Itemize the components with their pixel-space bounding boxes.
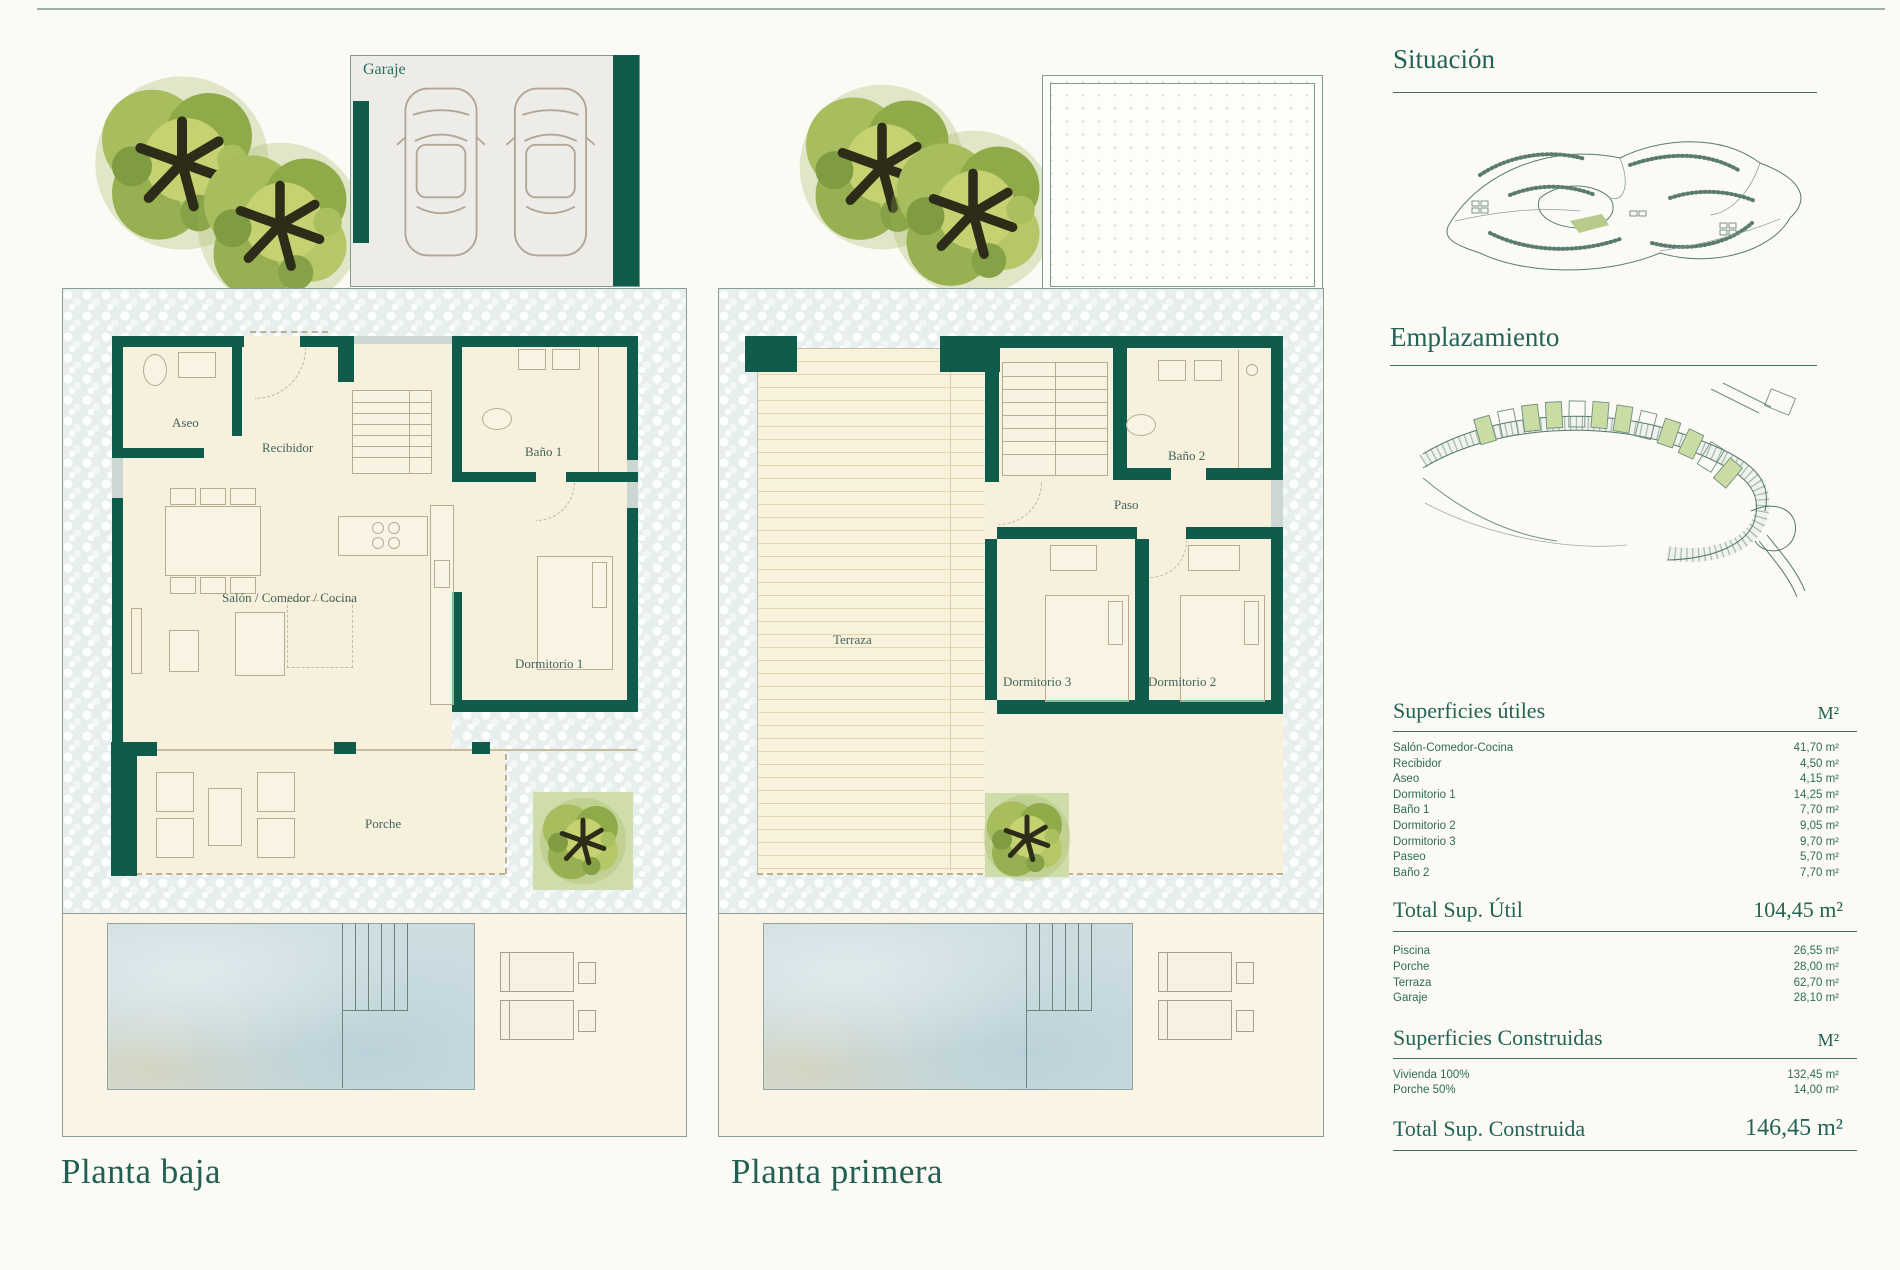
planta-baja-building [112, 712, 452, 748]
wall-segment [111, 742, 157, 756]
porch-chair [156, 772, 194, 812]
sink [552, 349, 580, 370]
emplazamiento-title: Emplazamiento [1390, 322, 1559, 353]
total-sup-construida: Total Sup. Construida 146,45 m² [1393, 1115, 1857, 1151]
unit-header: M² [1818, 1030, 1857, 1051]
table-row: Baño 27,70 m² [1393, 866, 1857, 882]
garage-roof-inner-border [1050, 83, 1315, 287]
sun-lounger [500, 952, 574, 992]
side-table [1236, 1010, 1254, 1032]
wall-segment [353, 101, 369, 243]
staircase [352, 390, 432, 474]
wall-segment [985, 336, 999, 482]
wardrobe [1188, 545, 1240, 571]
sink [1194, 360, 1222, 381]
toilet [143, 354, 167, 386]
row-label: Dormitorio 3 [1393, 835, 1456, 851]
room-label-bano2: Baño 2 [1168, 448, 1205, 464]
row-value: 9,70 m² [1800, 835, 1857, 851]
room-label-recibidor: Recibidor [262, 440, 313, 456]
wall-segment [997, 527, 1137, 539]
wall-segment [985, 539, 997, 700]
wall-segment [627, 508, 638, 712]
wall-segment [472, 742, 490, 754]
superficies-utiles-header: Superficies útiles M² [1393, 698, 1857, 732]
row-value: 9,05 m² [1800, 819, 1857, 835]
room-label-bano1: Baño 1 [525, 444, 562, 460]
exterior-rows: Piscina26,55 m²Porche28,00 m²Terraza62,7… [1393, 944, 1857, 1006]
row-label: Recibidor [1393, 757, 1442, 773]
kitchen-sink [434, 560, 450, 588]
toilet [482, 408, 512, 430]
kitchen-island [338, 516, 428, 556]
table-row: Vivienda 100%132,45 m² [1393, 1068, 1857, 1084]
plan-title-planta-primera: Planta primera [731, 1152, 943, 1192]
wall-segment [334, 742, 356, 754]
table-row: Garaje28,10 m² [1393, 991, 1857, 1007]
porch-dashed-edge [136, 873, 505, 875]
garage-plan: Garaje [350, 55, 640, 287]
row-value: 62,70 m² [1794, 976, 1857, 992]
situacion-rule [1393, 92, 1817, 93]
pool-steps [1026, 923, 1092, 1011]
car-icon [503, 83, 598, 261]
row-label: Baño 1 [1393, 803, 1429, 819]
row-value: 28,10 m² [1794, 991, 1857, 1007]
situacion-title: Situación [1393, 44, 1495, 75]
staircase [1002, 362, 1108, 476]
wall-segment [112, 336, 244, 347]
room-label-porche: Porche [365, 816, 401, 832]
row-value: 7,70 m² [1800, 866, 1857, 882]
wall-segment [1113, 468, 1171, 480]
wall-segment [452, 336, 638, 347]
pool [107, 923, 475, 1090]
porch-chair [257, 772, 295, 812]
stove-burner [372, 537, 384, 549]
stove-burner [388, 522, 400, 534]
rug [287, 600, 353, 668]
wall-segment [566, 472, 638, 482]
row-value: 41,70 m² [1794, 741, 1857, 757]
wall-segment [997, 336, 1283, 348]
porch-boundary-line [137, 749, 637, 751]
room-label-aseo: Aseo [172, 415, 199, 431]
wall-segment [613, 55, 639, 286]
wall-segment [452, 336, 462, 482]
room-label-salon: Salón / Comedor / Cocina [222, 590, 357, 606]
row-label: Dormitorio 2 [1393, 819, 1456, 835]
wall-segment [745, 336, 797, 372]
emplazamiento-rule [1390, 365, 1817, 366]
sink [518, 349, 546, 370]
row-value: 26,55 m² [1794, 944, 1857, 960]
row-label: Piscina [1393, 944, 1430, 960]
row-value: 14,25 m² [1794, 788, 1857, 804]
room-label-dormitorio3: Dormitorio 3 [1003, 674, 1071, 690]
side-table [578, 1010, 596, 1032]
sofa [235, 612, 285, 676]
wardrobe [1050, 545, 1097, 571]
toilet [1126, 414, 1156, 436]
table-row: Aseo4,15 m² [1393, 772, 1857, 788]
table-row: Terraza62,70 m² [1393, 976, 1857, 992]
row-value: 132,45 m² [1787, 1068, 1857, 1084]
sun-lounger [1158, 1000, 1232, 1040]
wall-segment [232, 336, 242, 436]
table-title: Superficies Construidas [1393, 1025, 1603, 1051]
areas-tables: Superficies útiles M² Salón-Comedor-Coci… [1393, 698, 1857, 1151]
superficies-construidas-header: Superficies Construidas M² [1393, 1025, 1857, 1059]
stove-burner [388, 537, 400, 549]
sun-lounger [500, 1000, 574, 1040]
row-label: Aseo [1393, 772, 1419, 788]
porch-chair [257, 818, 295, 858]
total-value: 146,45 m² [1745, 1115, 1857, 1142]
row-value: 4,15 m² [1800, 772, 1857, 788]
porch-table [208, 788, 242, 846]
armchair [169, 630, 199, 672]
entry-dashed-edge [250, 331, 328, 333]
window [354, 336, 452, 344]
wall-segment [1186, 527, 1283, 539]
table-row: Piscina26,55 m² [1393, 944, 1857, 960]
room-label-paso: Paso [1114, 497, 1139, 513]
row-label: Garaje [1393, 991, 1428, 1007]
table-row: Paseo5,70 m² [1393, 850, 1857, 866]
shower-screen [1238, 350, 1239, 468]
shower-screen [598, 347, 599, 472]
unit-header: M² [1818, 703, 1857, 724]
pillow [1244, 601, 1259, 645]
wall-segment [111, 756, 137, 876]
shower-drain [1246, 364, 1258, 376]
row-value: 14,00 m² [1794, 1083, 1857, 1099]
plan-title-planta-baja: Planta baja [61, 1152, 221, 1192]
row-label: Paseo [1393, 850, 1426, 866]
deck-edge [757, 348, 758, 875]
table-row: Dormitorio 39,70 m² [1393, 835, 1857, 851]
deck-joint [950, 360, 951, 870]
room-label-dormitorio2: Dormitorio 2 [1148, 674, 1216, 690]
chair [170, 488, 196, 505]
room-label-dormitorio1: Dormitorio 1 [515, 656, 583, 672]
superficies-utiles-rows: Salón-Comedor-Cocina41,70 m²Recibidor4,5… [1393, 741, 1857, 881]
wall-segment [627, 336, 638, 460]
wall-segment [1271, 348, 1283, 470]
wall-segment [300, 336, 340, 347]
row-value: 4,50 m² [1800, 757, 1857, 773]
table-row: Porche28,00 m² [1393, 960, 1857, 976]
row-label: Salón-Comedor-Cocina [1393, 741, 1513, 757]
table-row: Porche 50%14,00 m² [1393, 1083, 1857, 1099]
wall-segment [112, 498, 123, 750]
situacion-map [1420, 103, 1820, 315]
row-label: Dormitorio 1 [1393, 788, 1456, 804]
stove-burner [372, 522, 384, 534]
dining-table [165, 506, 261, 576]
window [627, 460, 638, 508]
bush-icon [533, 791, 633, 891]
pillow [1108, 601, 1123, 645]
wall-segment [112, 336, 123, 448]
porch-chair [156, 818, 194, 858]
tv-sideboard [131, 608, 142, 674]
wall-segment [997, 700, 1283, 714]
tree-icon [878, 118, 1068, 308]
wall-segment [452, 700, 638, 712]
total-label: Total Sup. Construida [1393, 1116, 1585, 1142]
sink [178, 352, 216, 378]
room-label-terraza: Terraza [833, 632, 872, 648]
garage-roof [1042, 75, 1323, 295]
row-label: Baño 2 [1393, 866, 1429, 882]
total-sup-util: Total Sup. Útil 104,45 m² [1393, 897, 1857, 932]
sun-lounger [1158, 952, 1232, 992]
table-row: Recibidor4,50 m² [1393, 757, 1857, 773]
porch-dashed-edge [505, 754, 507, 874]
table-row: Dormitorio 114,25 m² [1393, 788, 1857, 804]
pillow [592, 562, 607, 608]
chair [200, 488, 226, 505]
row-label: Terraza [1393, 976, 1431, 992]
wall-segment [1271, 528, 1283, 714]
table-title: Superficies útiles [1393, 698, 1545, 724]
row-value: 5,70 m² [1800, 850, 1857, 866]
kitchen-counter [430, 505, 454, 705]
bush-icon [977, 788, 1077, 888]
table-row: Salón-Comedor-Cocina41,70 m² [1393, 741, 1857, 757]
side-table [578, 962, 596, 984]
table-row: Dormitorio 29,05 m² [1393, 819, 1857, 835]
row-label: Vivienda 100% [1393, 1068, 1470, 1084]
chair [230, 488, 256, 505]
row-label: Porche [1393, 960, 1429, 976]
car-icon [394, 83, 488, 261]
sink [1158, 360, 1186, 381]
wall-segment [1113, 348, 1127, 472]
pool-steps [342, 923, 408, 1011]
wall-segment [1135, 539, 1149, 702]
wall-segment [112, 448, 204, 458]
total-value: 104,45 m² [1753, 897, 1857, 923]
wall-segment [338, 336, 354, 382]
room-label-garaje: Garaje [363, 61, 406, 79]
wall-segment [1206, 468, 1283, 480]
window [112, 458, 123, 498]
side-table [1236, 962, 1254, 984]
brochure-page: Garaje [0, 0, 1900, 1270]
row-value: 28,00 m² [1794, 960, 1857, 976]
chair [170, 577, 196, 594]
wall-segment [452, 472, 536, 482]
row-label: Porche 50% [1393, 1083, 1456, 1099]
row-value: 7,70 m² [1800, 803, 1857, 819]
top-rule [37, 8, 1885, 10]
table-row: Baño 17,70 m² [1393, 803, 1857, 819]
emplazamiento-map [1415, 383, 1810, 635]
superficies-construidas-rows: Vivienda 100%132,45 m²Porche 50%14,00 m² [1393, 1068, 1857, 1099]
total-label: Total Sup. Útil [1393, 897, 1523, 923]
